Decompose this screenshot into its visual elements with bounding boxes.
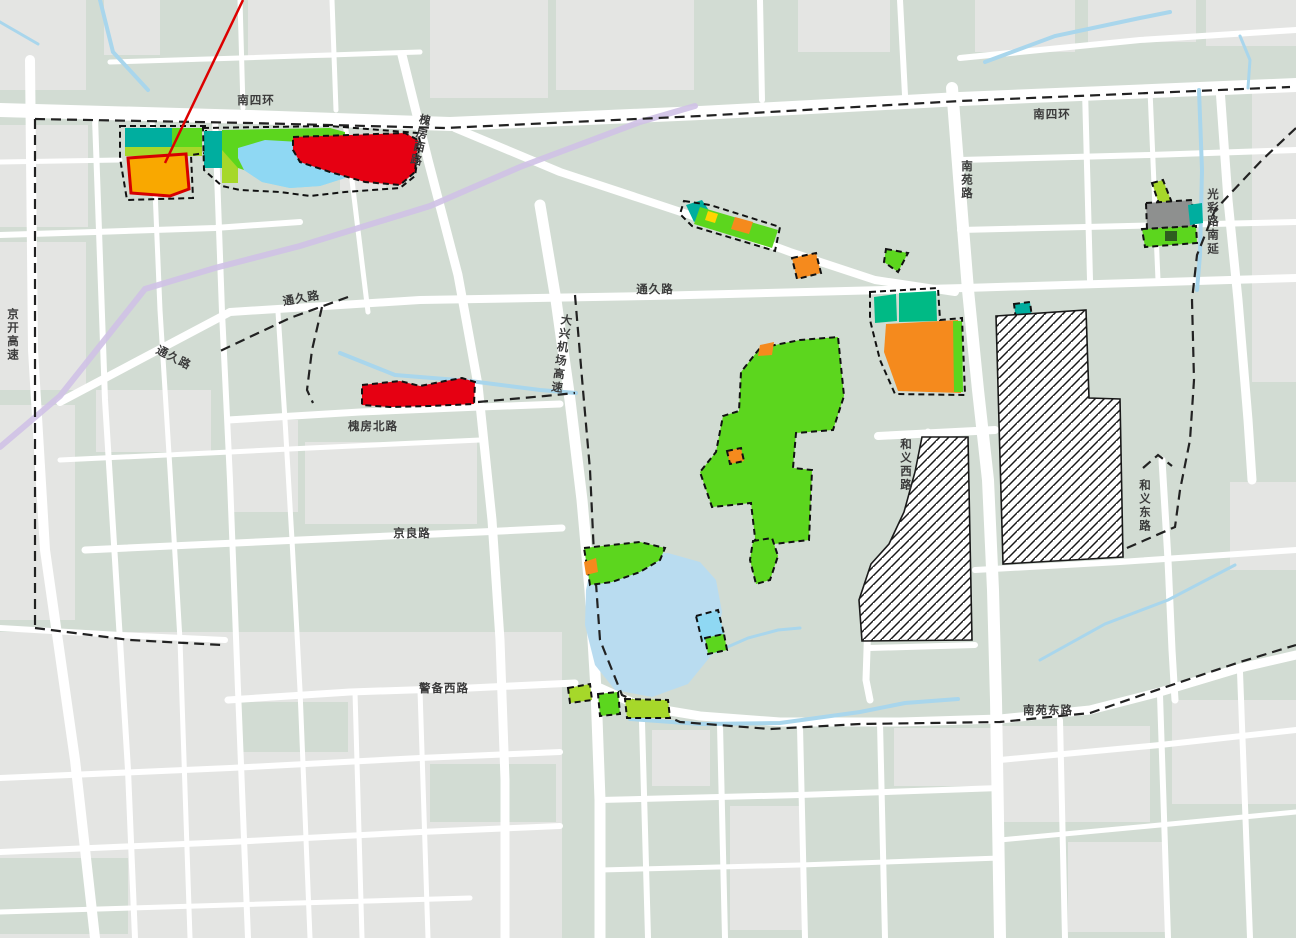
- label-nansihuan-west: 南四环: [237, 93, 275, 107]
- road-grid: [760, 0, 762, 100]
- label-nanyuanlu: 南苑路: [960, 159, 973, 200]
- parcel-emerald-b: [899, 291, 937, 322]
- city-block-green: [240, 702, 348, 752]
- city-block-gray: [1068, 842, 1166, 932]
- planning-map-stage: 南四环南四环槐房西路京开高速通久路通久路通久路大兴机场高速槐房北路京良路警备西路…: [0, 0, 1296, 938]
- planning-map-canvas[interactable]: 南四环南四环槐房西路京开高速通久路通久路通久路大兴机场高速槐房北路京良路警备西路…: [0, 0, 1296, 938]
- city-block-gray: [0, 0, 86, 90]
- parcel-green-edge: [953, 321, 963, 392]
- city-block-gray: [975, 0, 1075, 52]
- city-block-gray: [1206, 0, 1296, 46]
- label-nansihuan-east: 南四环: [1033, 107, 1071, 121]
- parcel-green-bottom1: [568, 684, 592, 703]
- road-grid: [0, 160, 120, 162]
- road-grid: [240, 0, 243, 108]
- label-jingbeixilu: 警备西路: [418, 681, 469, 695]
- label-heyixilu: 和义西路: [900, 437, 912, 492]
- parcel-yellow-red-border: [128, 154, 189, 196]
- city-block-gray: [96, 390, 211, 452]
- parcel-orange-big: [884, 320, 961, 393]
- parcel-teal-ne: [1188, 203, 1203, 225]
- label-tongjiulu-center: 通久路: [636, 282, 674, 296]
- parcel-green-bottom3: [625, 699, 670, 718]
- label-heyidonglu: 和义东路: [1139, 478, 1151, 533]
- parcel-orange-diamond: [727, 448, 744, 464]
- city-block-green: [0, 858, 128, 934]
- city-block-gray: [1002, 726, 1150, 822]
- city-block-gray: [556, 0, 694, 90]
- parcel-emerald-a: [874, 294, 897, 323]
- city-block-gray: [798, 0, 890, 52]
- city-block-gray: [430, 0, 548, 98]
- parcel-teal-strip: [204, 131, 222, 168]
- city-block-gray: [305, 442, 477, 524]
- road-grid: [870, 645, 975, 648]
- city-block-gray: [248, 0, 332, 58]
- label-guangcailu-nanyan: 光彩路南延: [1206, 187, 1219, 255]
- city-block-gray: [894, 728, 996, 786]
- city-block-gray: [1172, 700, 1296, 804]
- label-jingkaigaosu: 京开高速: [7, 307, 19, 362]
- label-nanyuandonglu: 南苑东路: [1023, 703, 1073, 717]
- label-huaifangbeilu: 槐房北路: [347, 419, 398, 433]
- city-block-green: [430, 764, 556, 822]
- parcel-dark-marker: [1165, 231, 1177, 241]
- parcel-green-bottom2: [598, 692, 620, 716]
- city-block-gray: [0, 125, 88, 227]
- label-jinglianglu: 京良路: [393, 526, 431, 540]
- parcel-gray-ne: [1146, 200, 1194, 229]
- city-block-gray: [652, 730, 710, 786]
